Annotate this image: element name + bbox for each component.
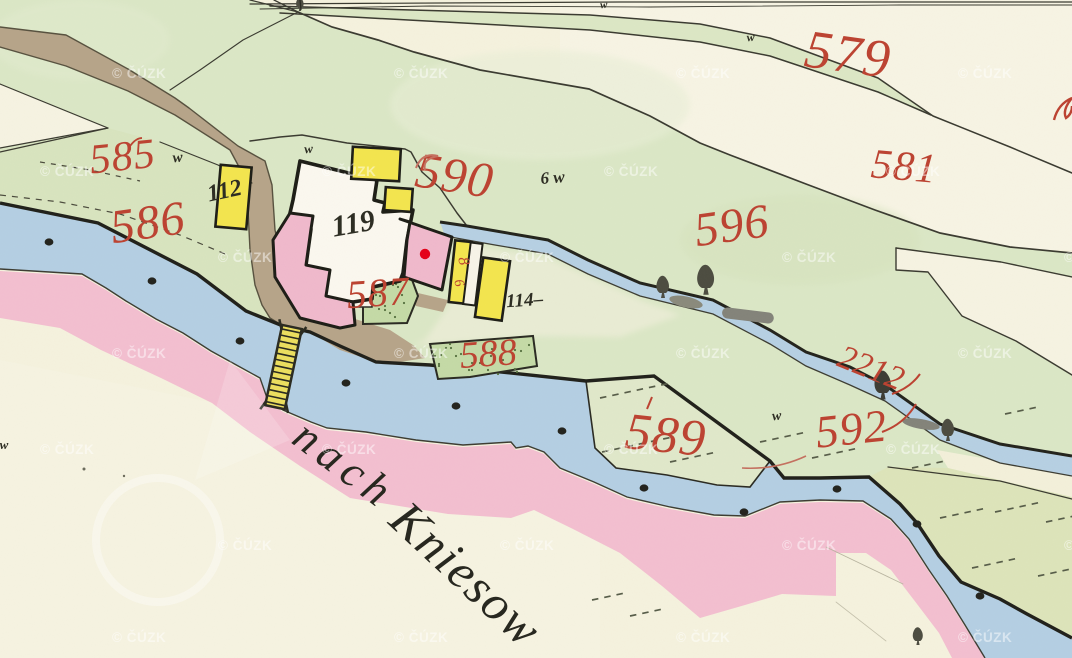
svg-text:© ČÚZK: © ČÚZK: [1064, 538, 1072, 553]
svg-text:© ČÚZK: © ČÚZK: [394, 66, 448, 81]
svg-text:© ČÚZK: © ČÚZK: [40, 442, 94, 457]
svg-text:© ČÚZK: © ČÚZK: [322, 442, 376, 457]
svg-text:© ČÚZK: © ČÚZK: [500, 538, 554, 553]
svg-text:© ČÚZK: © ČÚZK: [218, 250, 272, 265]
svg-text:© ČÚZK: © ČÚZK: [958, 346, 1012, 361]
svg-text:© ČÚZK: © ČÚZK: [886, 442, 940, 457]
svg-text:© ČÚZK: © ČÚZK: [886, 164, 940, 179]
svg-text:© ČÚZK: © ČÚZK: [958, 630, 1012, 645]
svg-text:© ČÚZK: © ČÚZK: [676, 66, 730, 81]
svg-text:© ČÚZK: © ČÚZK: [782, 538, 836, 553]
svg-text:© ČÚZK: © ČÚZK: [676, 630, 730, 645]
svg-text:© ČÚZK: © ČÚZK: [112, 346, 166, 361]
svg-text:© ČÚZK: © ČÚZK: [40, 164, 94, 179]
svg-text:© ČÚZK: © ČÚZK: [112, 66, 166, 81]
svg-text:© ČÚZK: © ČÚZK: [1064, 250, 1072, 265]
svg-text:© ČÚZK: © ČÚZK: [500, 250, 554, 265]
svg-text:© ČÚZK: © ČÚZK: [782, 250, 836, 265]
svg-text:© ČÚZK: © ČÚZK: [218, 538, 272, 553]
svg-text:© ČÚZK: © ČÚZK: [604, 164, 658, 179]
svg-text:© ČÚZK: © ČÚZK: [322, 164, 376, 179]
svg-text:© ČÚZK: © ČÚZK: [112, 630, 166, 645]
svg-text:© ČÚZK: © ČÚZK: [604, 442, 658, 457]
svg-text:© ČÚZK: © ČÚZK: [958, 66, 1012, 81]
svg-text:© ČÚZK: © ČÚZK: [676, 346, 730, 361]
svg-text:© ČÚZK: © ČÚZK: [394, 630, 448, 645]
svg-text:© ČÚZK: © ČÚZK: [394, 346, 448, 361]
